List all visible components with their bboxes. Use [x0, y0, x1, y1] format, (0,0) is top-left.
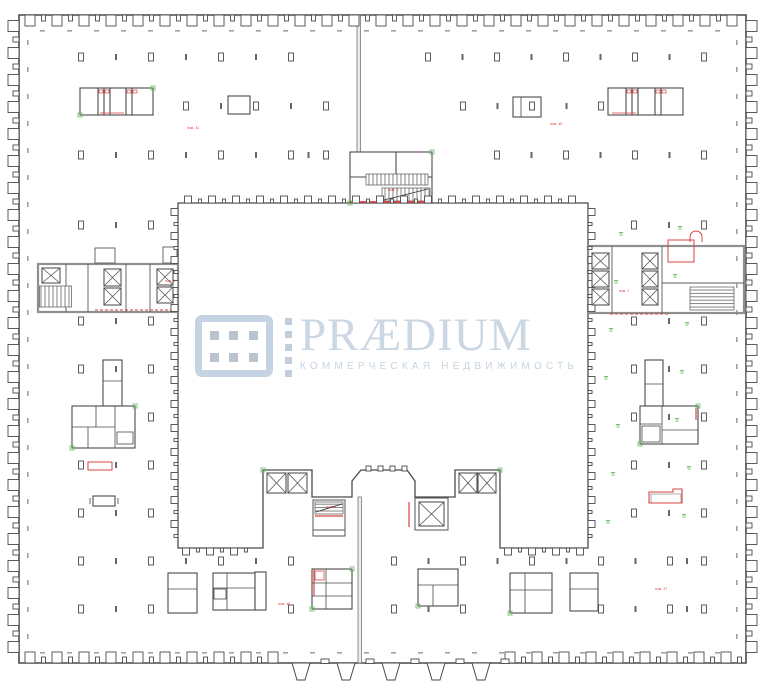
- floor-plan-page: пом. 31пом. 40пом. 5пом. 1пом. 7пом. 9по…: [0, 0, 766, 698]
- room-label: пом. 9: [326, 505, 336, 509]
- floor-plan-drawing: пом. 31пом. 40пом. 5пом. 1пом. 7пом. 9по…: [0, 0, 766, 698]
- right-toilet-block: [608, 88, 683, 115]
- left-wing-rooms: [72, 360, 135, 506]
- inner-courtyard: [178, 203, 588, 548]
- room-label: пом. 37: [655, 587, 667, 591]
- room-label: пом. 48: [278, 602, 290, 606]
- bottom-rooms: [168, 569, 598, 613]
- room-label: пом. 7: [619, 289, 629, 293]
- room-label: пом. 31: [187, 126, 199, 130]
- left-toilet-block: [80, 88, 153, 115]
- room-label: пом. 1: [165, 279, 175, 283]
- room-label: пом. 40: [550, 122, 562, 126]
- room-label: пом. 5: [388, 188, 398, 192]
- right-core: [588, 231, 744, 314]
- small-rooms-top: [228, 96, 541, 117]
- north-stair-block: [350, 152, 432, 202]
- right-wing-rooms: [640, 360, 698, 503]
